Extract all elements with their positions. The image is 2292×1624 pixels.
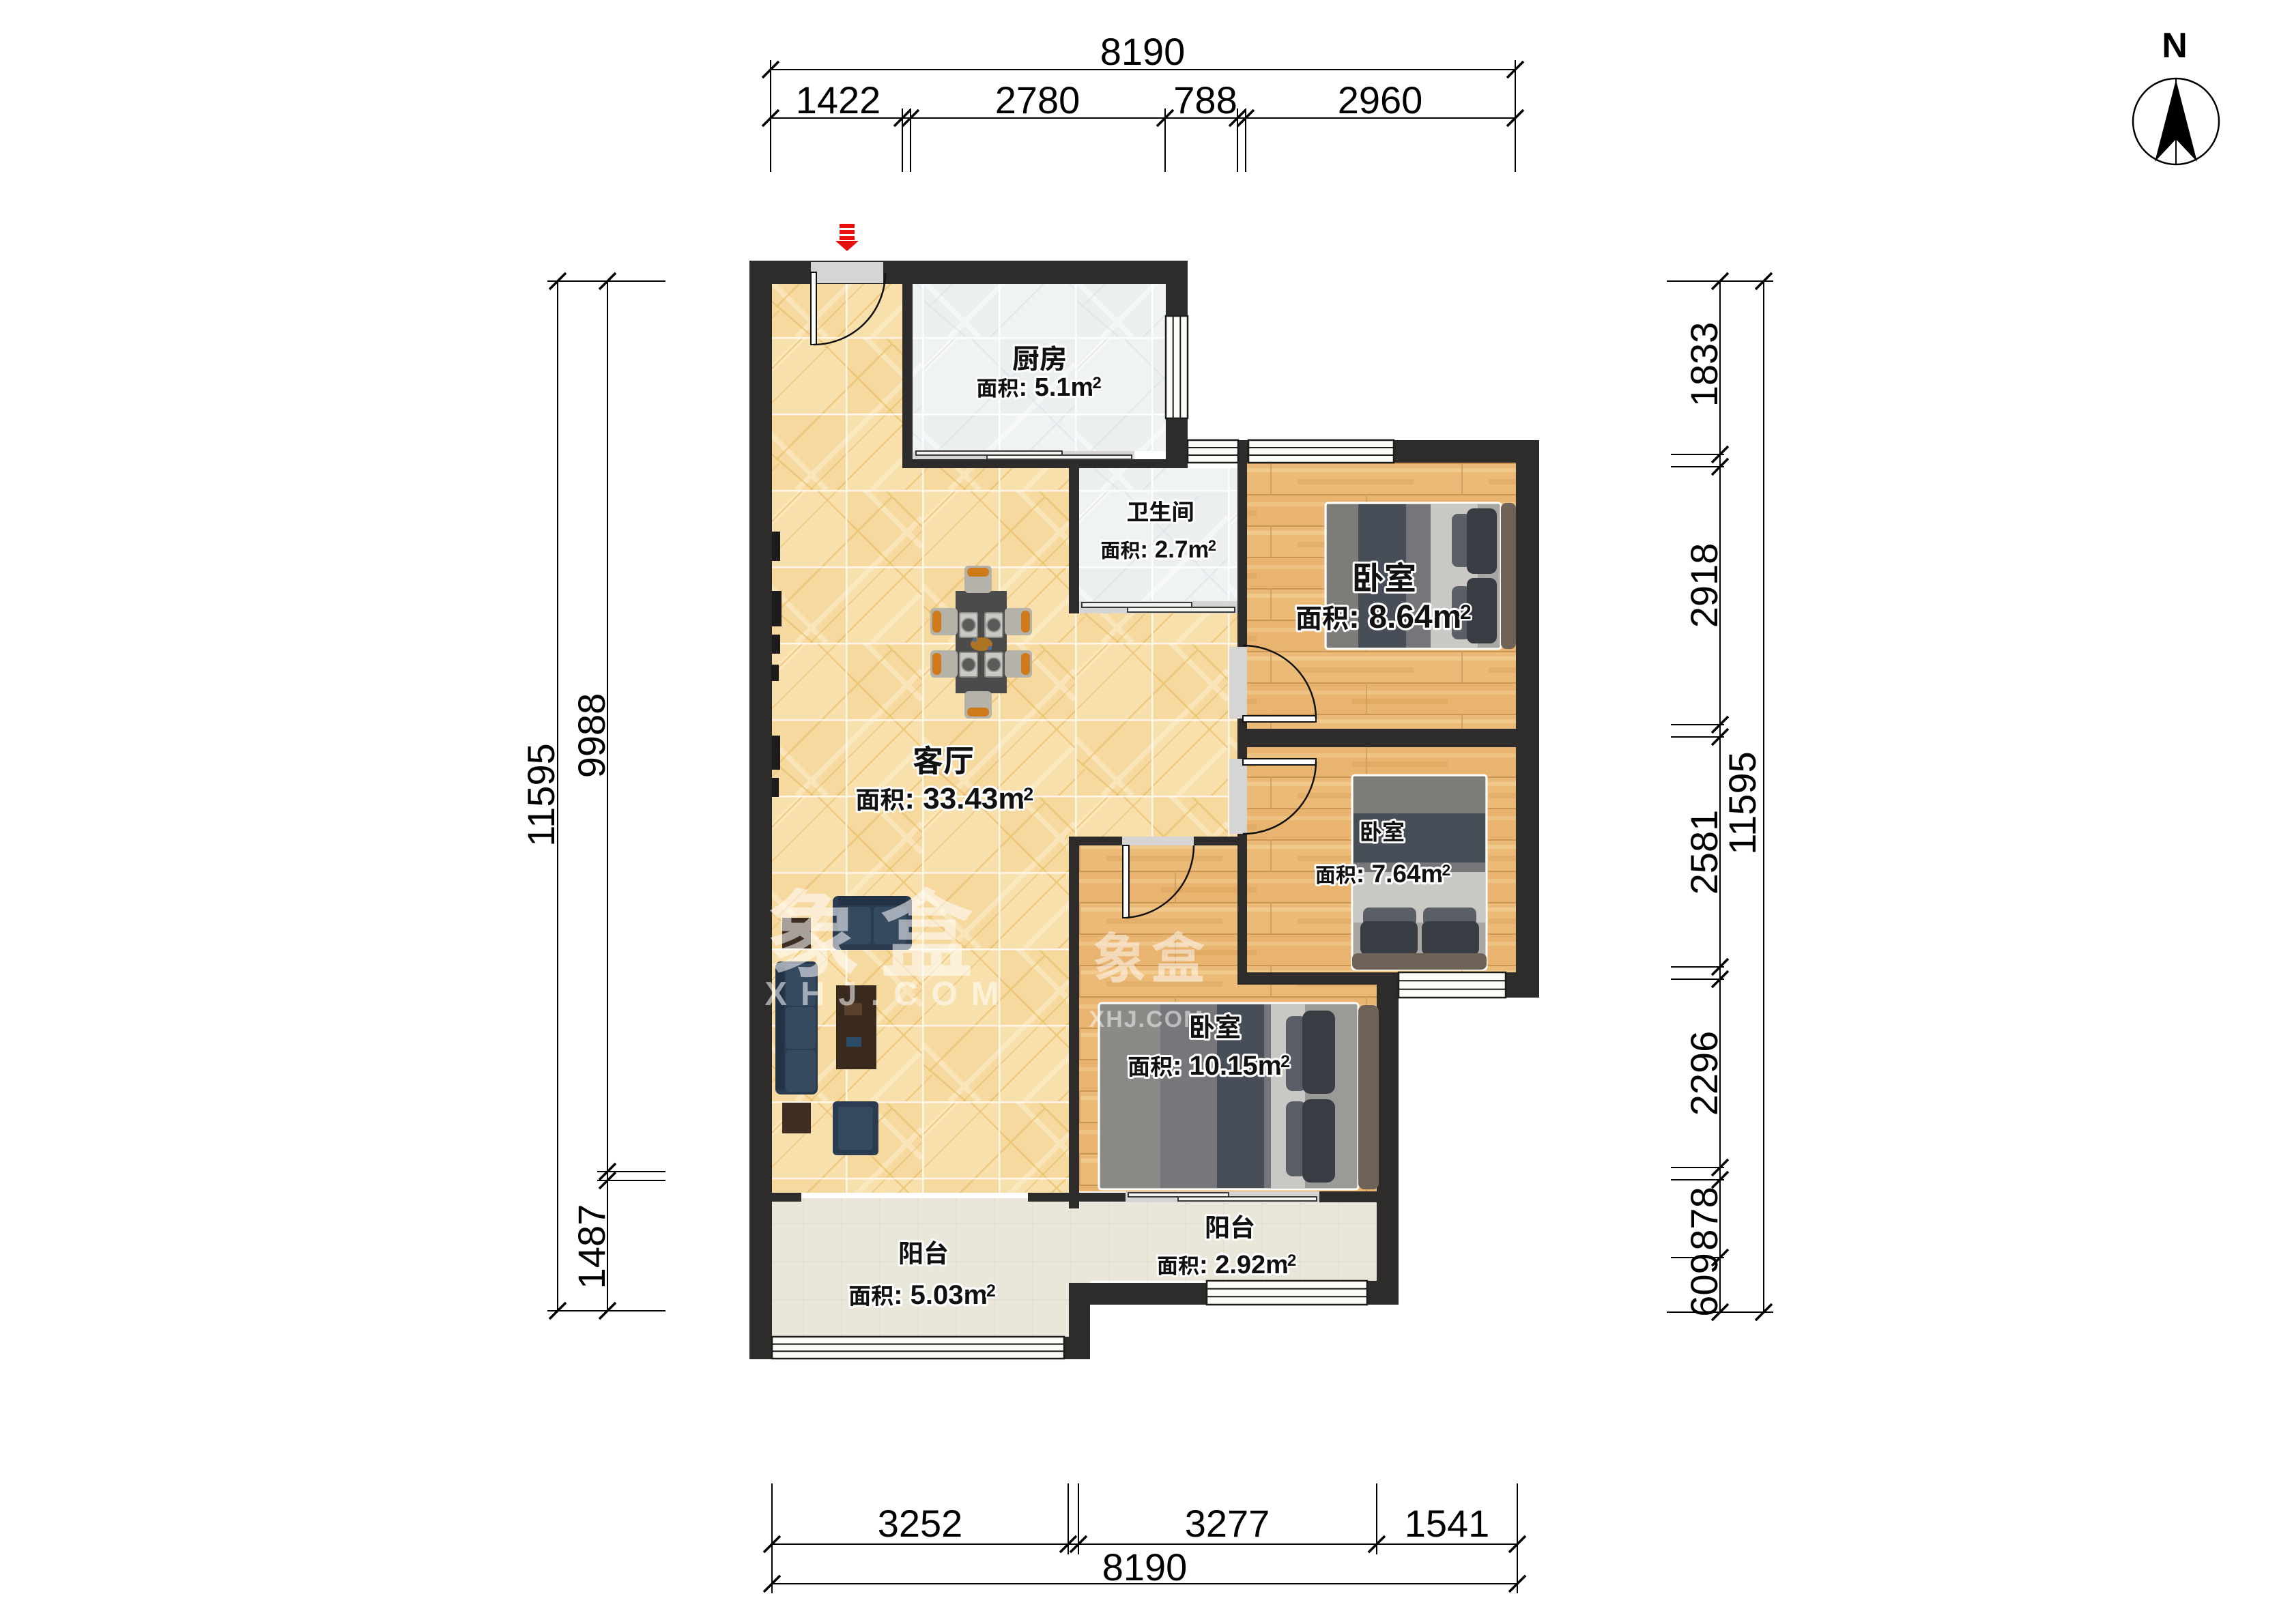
svg-text:N: N bbox=[2162, 26, 2188, 66]
svg-text:9988: 9988 bbox=[570, 693, 613, 779]
svg-text:8190: 8190 bbox=[1100, 30, 1186, 73]
svg-text:2296: 2296 bbox=[1682, 1031, 1725, 1116]
svg-text:: 5.1m: : 5.1m bbox=[1019, 373, 1094, 402]
svg-text:: 2.7m: : 2.7m bbox=[1140, 536, 1209, 563]
svg-text:609: 609 bbox=[1682, 1253, 1725, 1316]
svg-text:3277: 3277 bbox=[1185, 1502, 1270, 1545]
svg-text:788: 788 bbox=[1173, 78, 1237, 121]
svg-text:1833: 1833 bbox=[1682, 322, 1725, 407]
svg-text:2: 2 bbox=[1023, 784, 1033, 804]
svg-text:2: 2 bbox=[1280, 1052, 1290, 1071]
svg-text:XHJ.COM: XHJ.COM bbox=[1089, 1006, 1205, 1032]
svg-text:2780: 2780 bbox=[995, 78, 1080, 121]
svg-text:: 2.92m: : 2.92m bbox=[1199, 1251, 1289, 1279]
svg-text:2: 2 bbox=[986, 1281, 996, 1301]
svg-text:3252: 3252 bbox=[878, 1502, 963, 1545]
svg-text:2960: 2960 bbox=[1338, 78, 1423, 121]
svg-text:2: 2 bbox=[1093, 374, 1102, 392]
svg-text:878: 878 bbox=[1682, 1187, 1725, 1250]
svg-text:2: 2 bbox=[1208, 537, 1216, 554]
svg-text:2: 2 bbox=[1287, 1251, 1296, 1270]
svg-text:: 5.03m: : 5.03m bbox=[893, 1280, 988, 1310]
svg-text:: 7.64m: : 7.64m bbox=[1356, 860, 1444, 888]
svg-text:: 8.64m: : 8.64m bbox=[1349, 599, 1461, 635]
svg-text:2: 2 bbox=[1442, 861, 1451, 879]
svg-text:1422: 1422 bbox=[796, 78, 881, 121]
svg-text:11595: 11595 bbox=[1721, 751, 1764, 855]
svg-text:2: 2 bbox=[1460, 601, 1472, 624]
svg-text:2918: 2918 bbox=[1682, 543, 1725, 628]
svg-text:XHJ.COM: XHJ.COM bbox=[764, 976, 1012, 1013]
svg-text:11595: 11595 bbox=[519, 743, 562, 847]
svg-text:: 10.15m: : 10.15m bbox=[1173, 1051, 1282, 1081]
svg-text:1487: 1487 bbox=[570, 1204, 613, 1290]
svg-text:2581: 2581 bbox=[1682, 810, 1725, 895]
svg-text:8190: 8190 bbox=[1102, 1546, 1188, 1589]
svg-text:1541: 1541 bbox=[1405, 1502, 1490, 1545]
svg-text:: 33.43m: : 33.43m bbox=[904, 782, 1025, 815]
